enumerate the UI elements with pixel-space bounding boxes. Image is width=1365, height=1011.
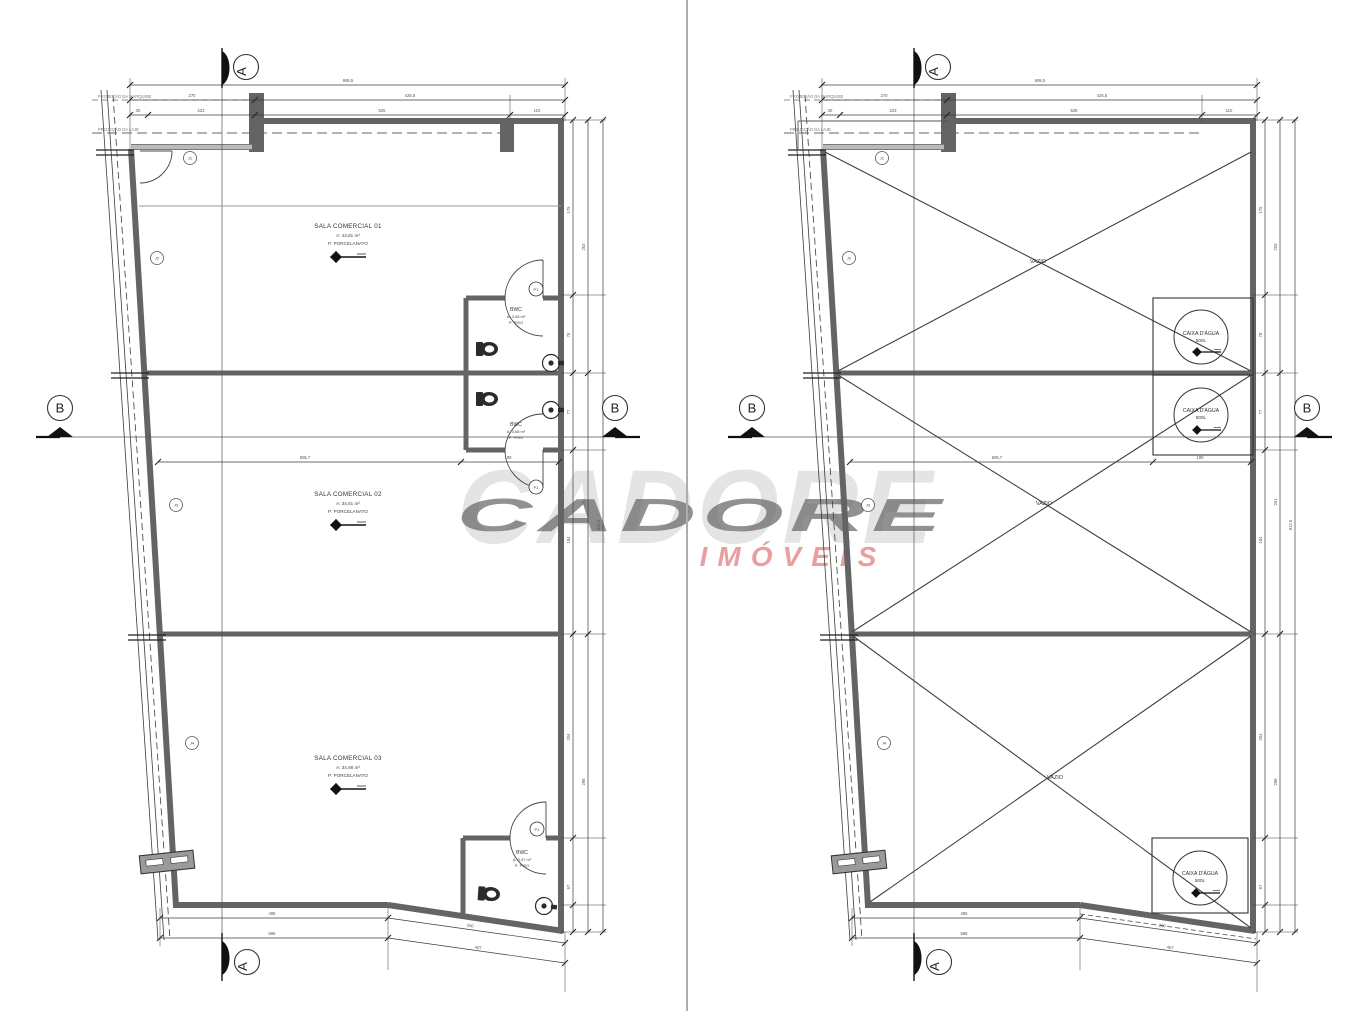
annotation-text: 184 bbox=[566, 536, 571, 544]
annotation-text: 204 bbox=[566, 733, 571, 741]
annotation-text: 190 bbox=[1197, 455, 1205, 460]
annotation-text: A bbox=[235, 962, 250, 971]
annotation-text: 78 bbox=[1258, 332, 1263, 337]
annotation-text: 695,5 bbox=[1035, 78, 1046, 83]
annotation-text: A bbox=[926, 67, 941, 76]
tank-capacity: 500L bbox=[1196, 415, 1207, 420]
annotation-text: 110 bbox=[534, 108, 541, 113]
annotation-text: 525 bbox=[1071, 108, 1079, 113]
watermark: CADORE CADORE IMÓVEIS bbox=[456, 449, 947, 572]
annotation-text: 175 bbox=[1258, 206, 1263, 214]
annotation-text: 261 bbox=[581, 498, 586, 506]
annotation-text: 586 bbox=[961, 931, 969, 936]
room-area: A: 34,68 m² bbox=[336, 765, 360, 770]
annotation-text: 298 bbox=[1273, 778, 1278, 786]
annotation-text: PROJEÇÃO DA MARQUISE bbox=[98, 94, 151, 99]
architectural-drawing-sheet: CADORE CADORE IMÓVEIS PROJEÇÃO DA MARQUI… bbox=[0, 0, 1365, 1011]
annotation-text: B bbox=[748, 401, 757, 416]
annotation-text: 97 bbox=[566, 884, 571, 889]
door-tag: P1 bbox=[530, 822, 544, 836]
annotation-text: 425,5 bbox=[1097, 93, 1108, 98]
annotation-text: 223 bbox=[890, 108, 898, 113]
annotation-text: 812,5 bbox=[596, 519, 601, 530]
annotation-text: 407 bbox=[474, 945, 482, 951]
annotation-text: 30 bbox=[828, 108, 833, 113]
annotation-text: 425,5 bbox=[405, 93, 416, 98]
annotation-text: PROJEÇÃO DA LAJE bbox=[790, 127, 831, 132]
bwc-floor: P: PISO bbox=[509, 320, 523, 325]
door-tag-label: P1 bbox=[534, 287, 540, 292]
annotation-text: A bbox=[234, 67, 249, 76]
wall-pier bbox=[500, 118, 514, 152]
annotation-text: 270 bbox=[189, 93, 197, 98]
annotation-text: A bbox=[927, 962, 942, 971]
annotation-text: B bbox=[1303, 401, 1312, 416]
door-tag-label: P1 bbox=[534, 485, 540, 490]
annotation-text: PROJEÇÃO DA MARQUISE bbox=[790, 94, 843, 99]
door-tag: P1 bbox=[529, 480, 543, 494]
tank-name: CAIXA D'ÁGUA bbox=[1182, 870, 1219, 877]
annotation-text: 77 bbox=[566, 409, 571, 414]
void-label: VAZIO bbox=[1047, 775, 1064, 781]
annotation-text: 184 bbox=[1258, 536, 1263, 544]
bwc-area: A: 3,47 m² bbox=[513, 857, 532, 862]
watermark-subtitle: IMÓVEIS bbox=[700, 541, 887, 572]
bwc-area: A: 3,08 m² bbox=[507, 314, 526, 319]
watermark-brand-echo: CADORE bbox=[456, 490, 947, 541]
room-name: SALA COMERCIAL 01 bbox=[314, 223, 382, 230]
annotation-text: 350 bbox=[466, 923, 474, 929]
tank-capacity: 500L bbox=[1196, 338, 1207, 343]
void-label: VAZIO bbox=[1030, 259, 1047, 265]
annotation-text: 407 bbox=[1166, 945, 1174, 951]
room-floor: P: PORCELANATO bbox=[328, 773, 368, 778]
annotation-text: 695,5 bbox=[343, 78, 354, 83]
annotation-text: 204 bbox=[1258, 733, 1263, 741]
tank-name: CAIXA D'ÁGUA bbox=[1183, 407, 1220, 414]
annotation-text: 261 bbox=[1273, 498, 1278, 506]
annotation-text: 525 bbox=[379, 108, 387, 113]
annotation-text: 97 bbox=[1258, 884, 1263, 889]
tank-capacity: 500L bbox=[1195, 878, 1206, 883]
door-tag: P1 bbox=[529, 282, 543, 296]
annotation-text: PROJEÇÃO DA LAJE bbox=[98, 127, 139, 132]
void-label: VAZIO bbox=[1036, 501, 1053, 507]
room-floor: P: PORCELANATO bbox=[328, 509, 368, 514]
floorplan-canvas: CADORE CADORE IMÓVEIS PROJEÇÃO DA MARQUI… bbox=[0, 0, 1365, 1011]
annotation-text: 78 bbox=[566, 332, 571, 337]
annotation-text: 270 bbox=[881, 93, 889, 98]
annotation-text: 298 bbox=[581, 778, 586, 786]
annotation-text: B bbox=[611, 401, 620, 416]
annotation-text: 110 bbox=[1226, 108, 1233, 113]
tank-name: CAIXA D'ÁGUA bbox=[1183, 330, 1220, 337]
annotation-text: 77 bbox=[1258, 409, 1263, 414]
annotation-text: 812,5 bbox=[1288, 519, 1293, 530]
annotation-text: 253 bbox=[1273, 243, 1278, 251]
annotation-text: 605,7 bbox=[992, 455, 1003, 460]
bwc-floor: P: PISO bbox=[515, 863, 529, 868]
room-area: A: 43,81 m² bbox=[336, 233, 360, 238]
annotation-text: 30 bbox=[136, 108, 141, 113]
annotation-text: 223 bbox=[198, 108, 206, 113]
bwc-name: BWC bbox=[516, 850, 528, 856]
door-tag-label: P1 bbox=[535, 827, 541, 832]
annotation-text: 605,7 bbox=[300, 455, 311, 460]
bwc-name: BWC bbox=[510, 307, 522, 313]
bwc-area: A: 3,08 m² bbox=[507, 429, 526, 434]
room-area: A: 34,61 m² bbox=[336, 501, 360, 506]
annotation-text: 495 bbox=[269, 911, 277, 916]
bwc-name: BWC bbox=[510, 422, 522, 428]
annotation-text: 495 bbox=[961, 911, 969, 916]
annotation-text: 586 bbox=[269, 931, 277, 936]
room-name: SALA COMERCIAL 02 bbox=[314, 491, 382, 498]
room-name: SALA COMERCIAL 03 bbox=[314, 755, 382, 762]
annotation-text: 253 bbox=[581, 243, 586, 251]
annotation-text: B bbox=[56, 401, 65, 416]
bwc-floor: P: PISO bbox=[509, 435, 523, 440]
annotation-text: 175 bbox=[566, 206, 571, 214]
room-floor: P: PORCELANATO bbox=[328, 241, 368, 246]
